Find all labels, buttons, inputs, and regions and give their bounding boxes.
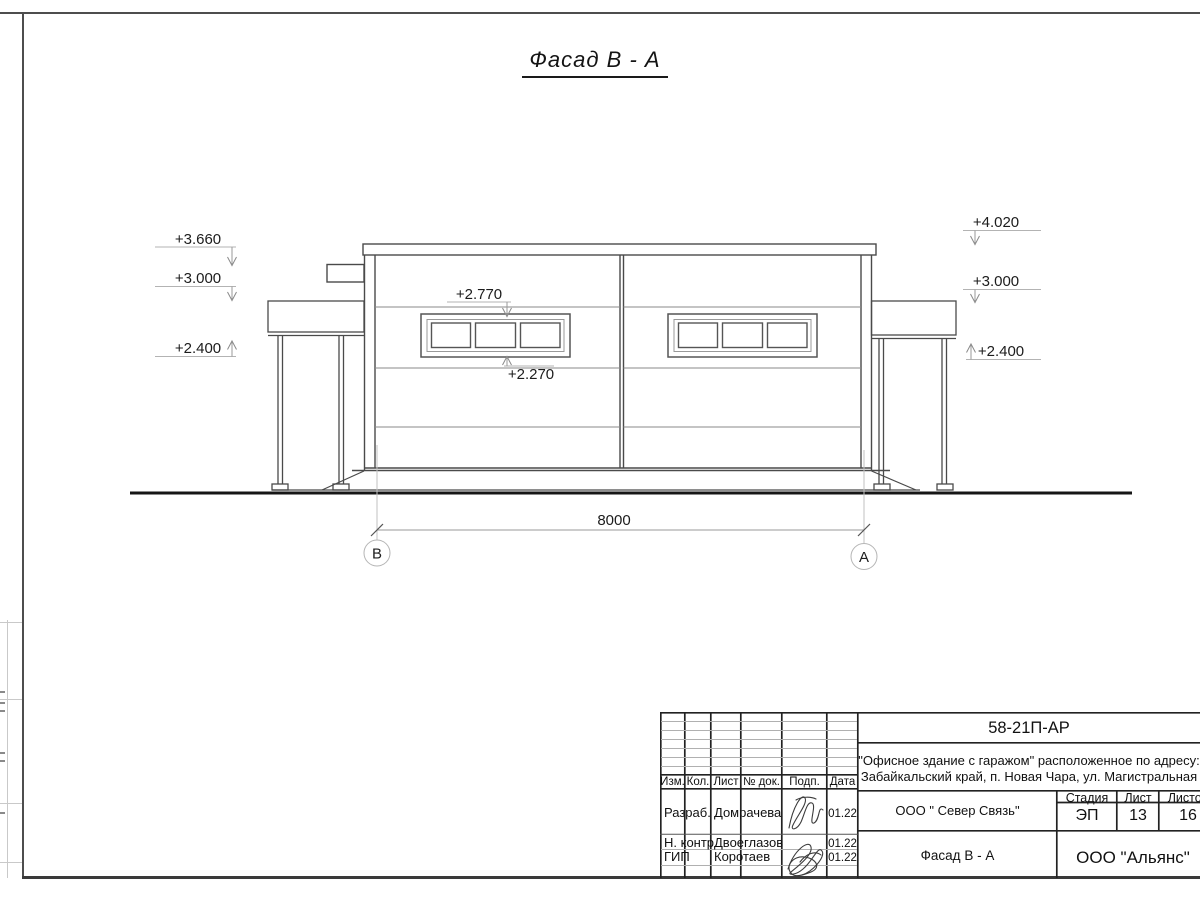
elevation-label: +4.020	[973, 214, 1019, 231]
signature	[789, 797, 823, 829]
margin-text-fragment	[0, 691, 5, 693]
window-pane	[432, 323, 471, 348]
titleblock-org-name: ООО "Альянс"	[1058, 848, 1200, 868]
margin-line	[0, 622, 22, 623]
elevation-label: +3.000	[175, 270, 221, 287]
right-canopy	[872, 301, 957, 490]
margin-text-fragment	[0, 760, 5, 762]
titleblock-stage-label: Стадия	[1057, 791, 1117, 805]
titleblock-header-data: Дата	[827, 775, 858, 789]
titleblock-name: Двоеглазов	[714, 836, 782, 850]
window-right	[668, 314, 817, 357]
titleblock-role: ГИП	[664, 850, 710, 864]
margin-line	[7, 620, 8, 878]
margin-text-fragment	[0, 812, 5, 814]
titleblock-sheet-value: 13	[1117, 809, 1159, 823]
titleblock-doc-number: 58-21П-АР	[858, 718, 1200, 738]
window-pane	[723, 323, 763, 348]
titleblock-drawing-name: Фасад В - А	[858, 849, 1057, 863]
titleblock-sheets-label: Листов	[1159, 791, 1200, 805]
titleblock-header-list: Лист	[711, 775, 741, 789]
dimension-value: 8000	[597, 512, 630, 529]
window-pane	[476, 323, 516, 348]
drawing-title: Фасад В - А	[522, 47, 668, 78]
titleblock-date: 01.22	[827, 837, 858, 851]
elevation-marks-right	[963, 231, 1041, 360]
axis-label-b: В	[372, 546, 382, 563]
facade-drawing: +3.660 +3.000 +2.400 +4.020 +3.000 +2.40…	[125, 205, 1140, 580]
elevation-label: +3.000	[973, 273, 1019, 290]
titleblock-company: ООО " Север Связь"	[858, 804, 1057, 818]
window-pane	[521, 323, 561, 348]
titleblock-header-ndok: № док.	[741, 775, 782, 789]
margin-text-fragment	[0, 710, 5, 712]
elevation-label: +2.400	[175, 340, 221, 357]
window-pane	[768, 323, 808, 348]
sheet-frame-left	[22, 12, 24, 878]
titleblock-name: Домрачева	[714, 806, 782, 820]
titleblock-role: Разраб.	[664, 806, 710, 820]
left-canopy	[268, 301, 364, 490]
titleblock-address-line1: "Офисное здание с гаражом" расположенное…	[858, 753, 1200, 769]
margin-line	[0, 699, 22, 700]
parapet	[363, 244, 876, 255]
plinth	[272, 471, 920, 490]
titleblock-header-izm: Изм.	[660, 775, 685, 789]
sheet-frame-top	[0, 12, 1200, 14]
elevation-label: +2.770	[456, 286, 502, 303]
margin-text-fragment	[0, 702, 5, 704]
titleblock-date: 01.22	[827, 807, 858, 821]
titleblock-sheets-value: 16	[1159, 809, 1200, 823]
titleblock-date: 01.22	[827, 851, 858, 865]
axis-label-a: А	[859, 549, 869, 566]
axis-bubbles: В А	[364, 540, 877, 570]
titleblock-name: Коротаев	[714, 850, 782, 864]
elevation-label: +2.400	[978, 343, 1024, 360]
facade-panel-lines	[375, 307, 861, 427]
titleblock-header-podp: Подп.	[782, 775, 827, 789]
margin-line	[0, 803, 22, 804]
margin-text-fragment	[0, 752, 5, 754]
elevation-label: +3.660	[175, 231, 221, 248]
window-pane	[679, 323, 718, 348]
window-left	[421, 314, 570, 357]
titleblock-sheet-label: Лист	[1117, 791, 1159, 805]
elevation-label: +2.270	[508, 366, 554, 383]
titleblock-stage-value: ЭП	[1057, 809, 1117, 823]
wall-projection	[327, 265, 364, 283]
titleblock-header-kol: Кол.	[685, 775, 711, 789]
titleblock-address-line2: Забайкальский край, п. Новая Чара, ул. М…	[858, 769, 1200, 785]
margin-line	[0, 862, 22, 863]
